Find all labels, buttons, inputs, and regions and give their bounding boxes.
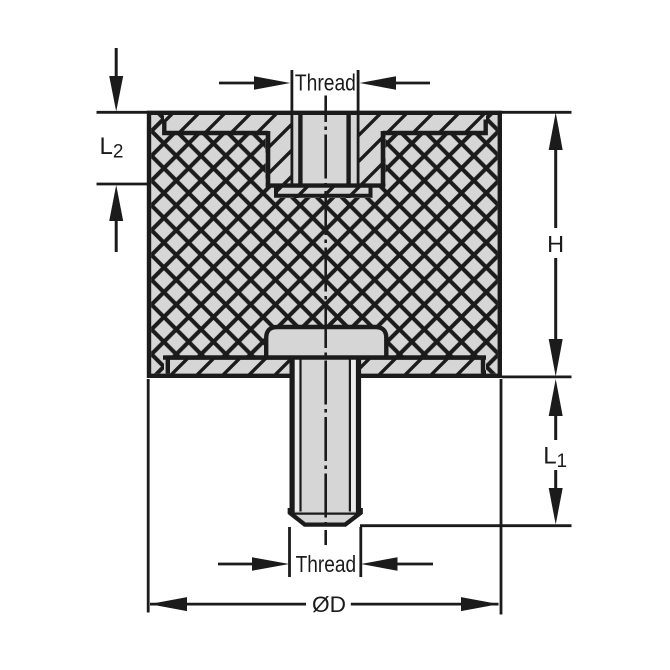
svg-text:ØD: ØD [312,592,346,617]
svg-text:H: H [547,231,564,257]
svg-text:Thread: Thread [295,69,356,95]
svg-text:Thread: Thread [296,551,357,577]
